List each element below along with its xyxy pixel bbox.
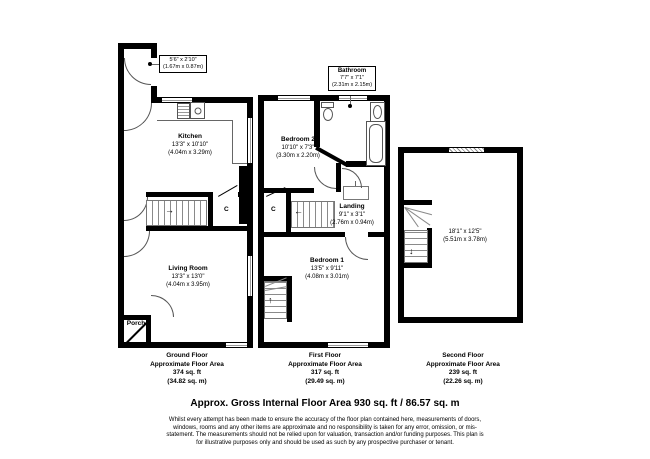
floor-plan-page: → Kitchen 13'3" x 10'10" (4.04m x 3.29m)… <box>0 0 650 459</box>
floor-area-metric: (29.49 sq. m) <box>265 378 385 387</box>
floor-name: Ground Floor <box>127 352 247 361</box>
disclaimer-text: Whilst every attempt has been made to en… <box>165 417 485 447</box>
stairs-down-arrow-icon: ↓ <box>409 247 414 256</box>
room-dims-metric: (5.51m x 3.78m) <box>415 236 515 244</box>
floor-area-label: Approximate Floor Area <box>403 361 523 370</box>
floor-area-imperial: 317 sq. ft <box>265 369 385 378</box>
floor-area-metric: (34.82 sq. m) <box>127 378 247 387</box>
second-floor-caption: Second Floor Approximate Floor Area 239 … <box>403 352 523 386</box>
floor-name: Second Floor <box>403 352 523 361</box>
floor-area-label: Approximate Floor Area <box>127 361 247 370</box>
second-floor-room-label: 18'1" x 12'5" (5.51m x 3.78m) <box>415 228 515 244</box>
total-area-title: Approx. Gross Internal Floor Area 930 sq… <box>0 398 650 409</box>
stair-enclosure-wall <box>404 263 432 268</box>
floor-area-imperial: 239 sq. ft <box>403 369 523 378</box>
first-floor-caption: First Floor Approximate Floor Area 317 s… <box>265 352 385 386</box>
skylight-window <box>448 147 485 153</box>
ground-floor-caption: Ground Floor Approximate Floor Area 374 … <box>127 352 247 386</box>
floor-name: First Floor <box>265 352 385 361</box>
floor-area-metric: (22.26 sq. m) <box>403 378 523 387</box>
floor-area-imperial: 374 sq. ft <box>127 369 247 378</box>
exterior-wall <box>398 317 523 323</box>
exterior-wall <box>517 147 523 323</box>
floor-area-label: Approximate Floor Area <box>265 361 385 370</box>
second-floor-plan: ↓ 18'1" x 12'5" (5.51m x 3.78m) <box>0 0 650 459</box>
room-dims-imperial: 18'1" x 12'5" <box>415 228 515 236</box>
stair-enclosure-wall <box>404 200 432 205</box>
